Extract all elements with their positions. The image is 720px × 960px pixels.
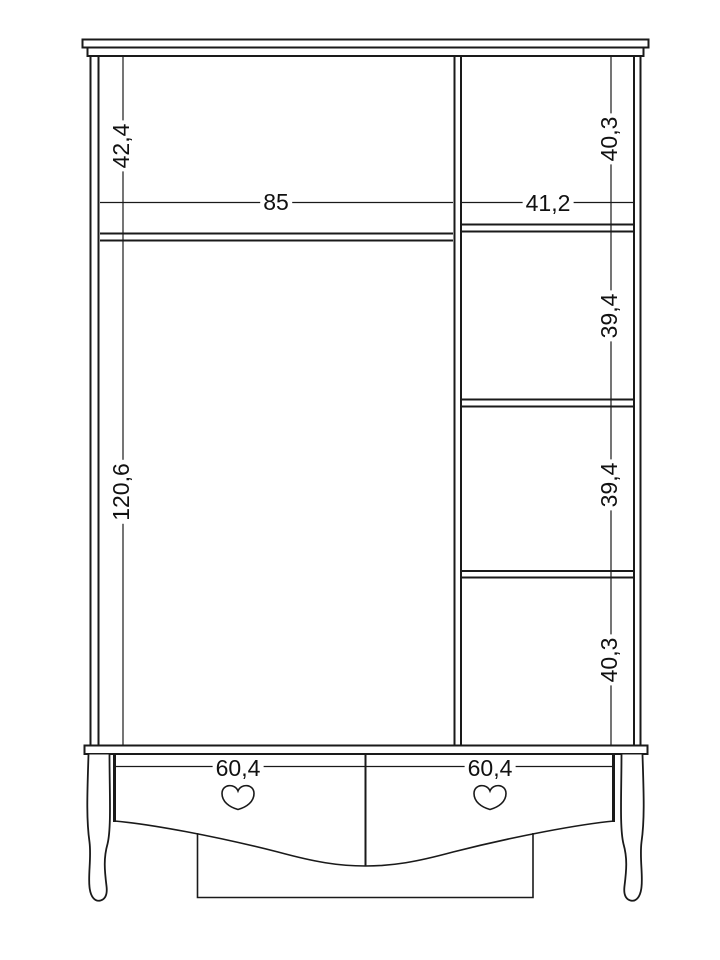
heart-handle-left-icon (222, 786, 254, 810)
top-cornice-upper-board (83, 40, 649, 48)
drawer-area (115, 754, 615, 898)
dim-label-right-bottom-height: 40,3 (597, 635, 621, 686)
dim-label-right-width: 41,2 (523, 191, 574, 215)
left-cabriole-leg (87, 755, 110, 901)
right-cabriole-leg (621, 755, 644, 901)
dim-label-left-upper-height: 42,4 (109, 121, 133, 172)
dim-label-right-top-height: 40,3 (597, 114, 621, 165)
dimension-lines (100, 57, 633, 767)
dim-label-left-drawer-width: 60,4 (213, 756, 264, 780)
dim-label-right-drawer-width: 60,4 (465, 756, 516, 780)
heart-handle-right-icon (474, 786, 506, 810)
furniture-dimension-drawing: 42,4 120,6 85 41,2 40,3 39,4 39,4 40,3 6… (0, 0, 720, 960)
dim-label-right-upper-mid-height: 39,4 (597, 291, 621, 342)
carcass (83, 40, 649, 755)
top-cornice-lower-board (88, 48, 644, 57)
dim-label-left-lower-height: 120,6 (109, 460, 133, 524)
dim-label-left-width: 85 (260, 190, 292, 214)
dim-label-right-lower-mid-height: 39,4 (597, 460, 621, 511)
base-board (85, 746, 648, 755)
